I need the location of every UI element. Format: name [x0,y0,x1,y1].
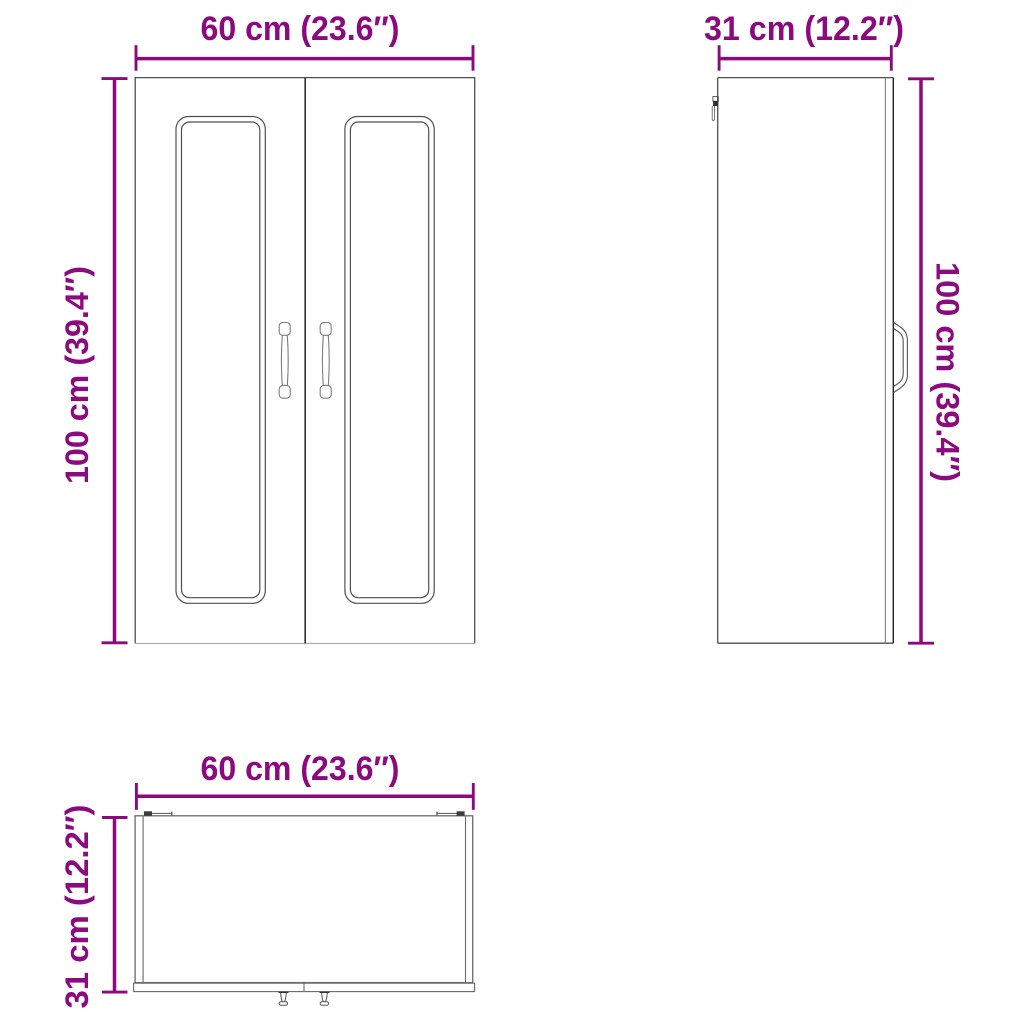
svg-text:100 cm (39.4″): 100 cm (39.4″) [59,266,95,484]
svg-text:60 cm (23.6″): 60 cm (23.6″) [201,750,400,788]
svg-text:31 cm (12.2″): 31 cm (12.2″) [704,10,904,48]
svg-text:31 cm (12.2″): 31 cm (12.2″) [59,805,95,1009]
svg-text:60 cm (23.6″): 60 cm (23.6″) [201,10,400,48]
svg-text:100 cm (39.4″): 100 cm (39.4″) [930,262,966,482]
